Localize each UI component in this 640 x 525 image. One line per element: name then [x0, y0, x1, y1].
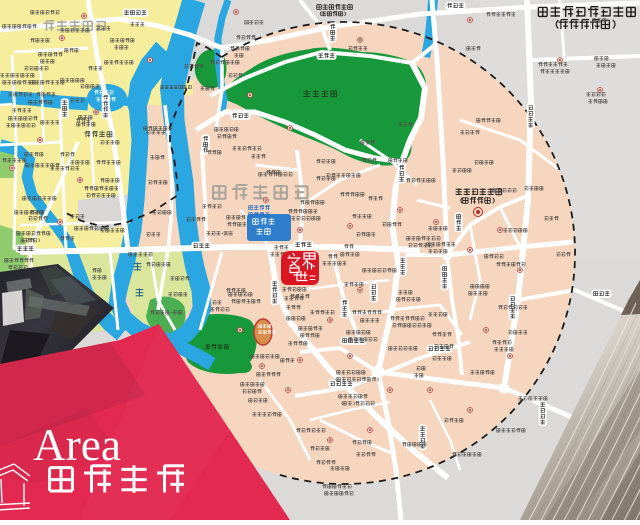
svg-text:Area: Area: [33, 419, 121, 470]
